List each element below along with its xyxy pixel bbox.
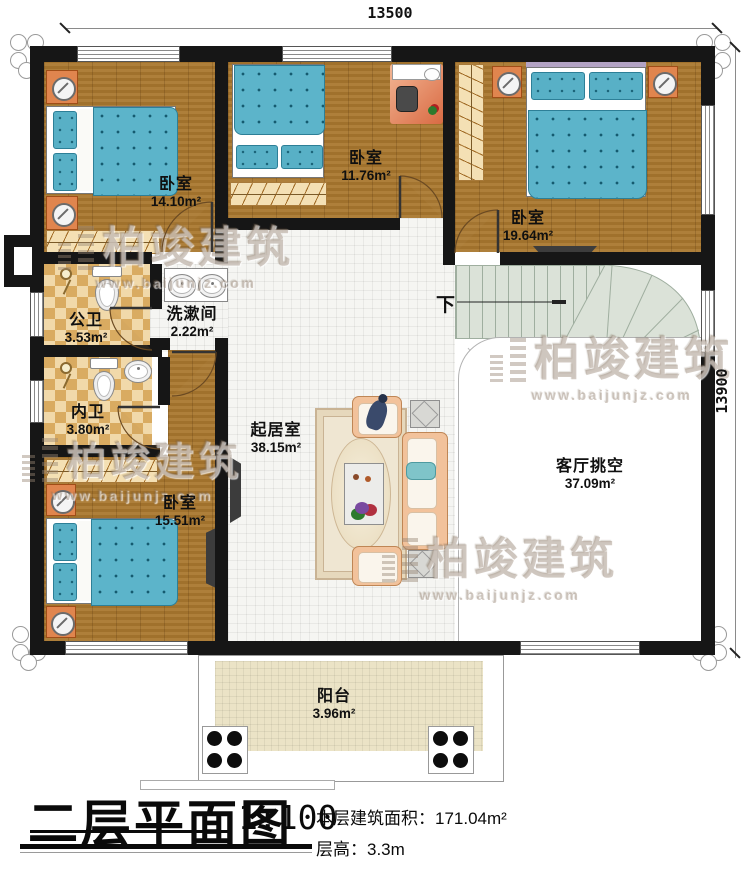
pillow xyxy=(53,563,77,601)
lamp-icon xyxy=(653,72,677,96)
window xyxy=(520,641,640,655)
shower-icon xyxy=(60,268,72,280)
wardrobe xyxy=(458,64,484,181)
room-label-bedroom1: 卧室14.10m² xyxy=(120,176,232,209)
title-underline xyxy=(30,830,230,833)
chair xyxy=(396,86,418,112)
floor-height-text: 层高：3.3m xyxy=(316,835,405,860)
blanket xyxy=(91,519,178,606)
wall-bedroom2-bottom xyxy=(228,218,400,230)
sink-icon xyxy=(124,360,152,383)
room-label-living-void: 客厅挑空37.09m² xyxy=(510,458,670,491)
vanity-counter xyxy=(164,268,228,302)
wall-privatebath-bottom xyxy=(30,445,160,457)
right-dimension-label: 13900 xyxy=(713,351,731,431)
room-label-washroom: 洗漱间2.22m² xyxy=(146,306,238,339)
wardrobe xyxy=(230,182,327,206)
stair-down-label: 下 xyxy=(436,290,455,317)
nightstand xyxy=(648,66,678,98)
wall-bedroom2-bedroom3 xyxy=(443,62,455,265)
shower-icon xyxy=(60,362,72,374)
wardrobe xyxy=(46,459,158,483)
room-label-bedroom2: 卧室11.76m² xyxy=(308,150,424,183)
top-dimension-label: 13500 xyxy=(340,4,440,22)
room-label-private-bath: 内卫3.80m² xyxy=(42,404,134,437)
sink-icon xyxy=(198,274,226,298)
title-rule-thin xyxy=(20,852,312,853)
flower-icon xyxy=(355,502,369,514)
lamp-icon xyxy=(51,490,75,514)
sofa-cushion xyxy=(407,512,437,546)
right-dimension-line xyxy=(735,48,736,658)
window xyxy=(701,105,715,215)
window xyxy=(77,46,180,62)
balcony-column xyxy=(202,726,248,774)
column-dot xyxy=(453,731,468,746)
nightstand xyxy=(46,196,78,230)
wall-bedroom1-right xyxy=(215,62,228,264)
wall-bedroom1-bottom xyxy=(30,252,152,264)
nightstand xyxy=(46,70,78,104)
pillow xyxy=(589,72,643,100)
pillow xyxy=(531,72,585,100)
sink-icon xyxy=(168,274,196,298)
wall-washroom-bottom xyxy=(150,338,170,350)
closet-nook-floor xyxy=(168,350,215,457)
blanket xyxy=(528,110,647,199)
title-rule-heavy xyxy=(20,844,312,849)
floor-plan: 13500 13900 xyxy=(0,0,750,872)
pillow xyxy=(53,523,77,561)
room-label-bedroom4: 卧室15.51m² xyxy=(122,495,238,528)
end-table xyxy=(408,550,438,578)
wall-privatebath-right xyxy=(158,357,170,405)
nightstand xyxy=(46,606,76,638)
room-label-bedroom3: 卧室19.64m² xyxy=(468,210,588,243)
sofa-cushion xyxy=(358,552,398,583)
top-dimension-line xyxy=(65,28,718,29)
floor-height-label: 层高： xyxy=(316,840,367,859)
wall-bath-divider xyxy=(30,345,162,357)
lamp-icon xyxy=(497,72,521,96)
bed xyxy=(46,518,176,604)
window xyxy=(282,46,392,62)
window xyxy=(701,290,715,353)
floor-area-value: 171.04m² xyxy=(435,809,507,828)
balcony-column xyxy=(428,726,474,774)
column-dot xyxy=(453,753,468,768)
person-figure xyxy=(406,462,436,480)
table-decor xyxy=(365,476,371,482)
plant-icon xyxy=(428,106,437,115)
room-label-living-room: 起居室38.15m² xyxy=(220,422,332,455)
pillow xyxy=(53,111,77,149)
floor-area-text: 本层建筑面积：171.04m² xyxy=(316,804,507,829)
floor-height-value: 3.3m xyxy=(367,840,405,859)
toilet-icon xyxy=(90,358,118,369)
pillow xyxy=(236,145,278,169)
coffee-table xyxy=(344,463,384,525)
sofa-cushion xyxy=(407,475,437,509)
room-label-balcony: 阳台3.96m² xyxy=(278,688,390,721)
lamp-icon xyxy=(52,77,76,101)
column-dot xyxy=(227,753,242,768)
sofa-long xyxy=(402,432,448,550)
nightstand xyxy=(492,66,522,98)
column-dot xyxy=(433,753,448,768)
lamp-icon xyxy=(51,612,75,636)
column-dot xyxy=(207,731,222,746)
wardrobe xyxy=(46,230,160,254)
sofa-single xyxy=(352,546,402,586)
nightstand xyxy=(46,484,76,516)
stair-straight-flight xyxy=(455,265,607,339)
column-dot xyxy=(433,731,448,746)
column-dot xyxy=(207,753,222,768)
pillow xyxy=(53,153,77,191)
end-table xyxy=(410,400,440,428)
table-decor xyxy=(353,474,359,480)
blanket xyxy=(234,65,325,135)
wall-jog-niche xyxy=(14,247,32,275)
bed xyxy=(526,67,646,197)
floor-area-label: 本层建筑面积： xyxy=(316,809,435,828)
toilet-icon xyxy=(92,266,122,277)
room-label-public-bath: 公卫3.53m² xyxy=(40,312,132,345)
hat-icon xyxy=(424,68,440,81)
window xyxy=(65,641,188,655)
lamp-icon xyxy=(52,203,76,227)
wall-publicbath-right xyxy=(150,264,162,309)
wall-bedroom4-right xyxy=(215,338,228,641)
column-dot xyxy=(227,731,242,746)
wall-bedroom3-bottom xyxy=(500,252,701,265)
